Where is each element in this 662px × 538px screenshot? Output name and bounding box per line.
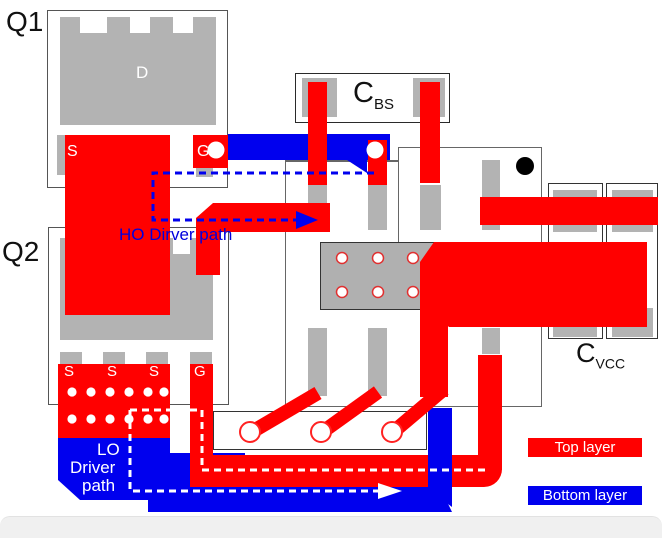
- legend-bottom-layer: Bottom layer: [528, 486, 642, 505]
- cvcc-label: CVCC: [576, 340, 625, 370]
- lo-driver-path-label-2: Driver: [70, 459, 115, 476]
- cvcc-label-sub: VCC: [596, 355, 626, 371]
- q1-label: Q1: [6, 8, 43, 36]
- footer-strip: [0, 516, 662, 538]
- thermal-via: [373, 287, 384, 298]
- ho-driver-path-arrow: [296, 211, 318, 229]
- connector-hole-2: [311, 422, 331, 442]
- lo-driver-path-label-3: path: [82, 477, 115, 494]
- ho-via: [367, 142, 384, 159]
- q2-pad-label-g: G: [194, 364, 206, 379]
- connector-hole-3: [382, 422, 402, 442]
- thermal-via: [337, 253, 348, 264]
- cbs-label-sub: BS: [374, 96, 394, 113]
- cbs-label: CBS: [353, 79, 394, 112]
- pcb-layout-figure: Q1 Q2 D S G CBS CVCC HO Dirver path LO D…: [0, 0, 662, 538]
- lo-driver-path-line-upper: [130, 410, 486, 470]
- legend-top-layer: Top layer: [528, 438, 642, 457]
- legend-top-layer-label: Top layer: [555, 439, 616, 456]
- lo-driver-path-label-1: LO: [97, 441, 120, 458]
- thermal-via: [408, 253, 419, 264]
- source-via-array: [67, 387, 168, 423]
- q1-drain-label: D: [136, 64, 148, 81]
- connector-hole-1: [240, 422, 260, 442]
- gate-via: [208, 142, 225, 159]
- q2-pad-label-s1: S: [64, 364, 74, 379]
- connector-trace-1: [250, 393, 318, 433]
- thermal-via: [408, 287, 419, 298]
- ho-driver-path-line: [153, 173, 374, 220]
- ho-driver-path-label: HO Dirver path: [119, 226, 232, 243]
- thermal-via: [373, 253, 384, 264]
- q2-pad-label-s2: S: [107, 364, 117, 379]
- q1-source-label: S: [67, 144, 78, 160]
- lo-driver-path-arrow: [378, 483, 402, 499]
- legend-bottom-layer-label: Bottom layer: [543, 487, 627, 504]
- q1-gate-label: G: [197, 144, 209, 160]
- thermal-via: [337, 287, 348, 298]
- q2-pad-label-s3: S: [149, 364, 159, 379]
- pin1-marker-dot: [516, 157, 534, 175]
- q2-label: Q2: [2, 238, 39, 266]
